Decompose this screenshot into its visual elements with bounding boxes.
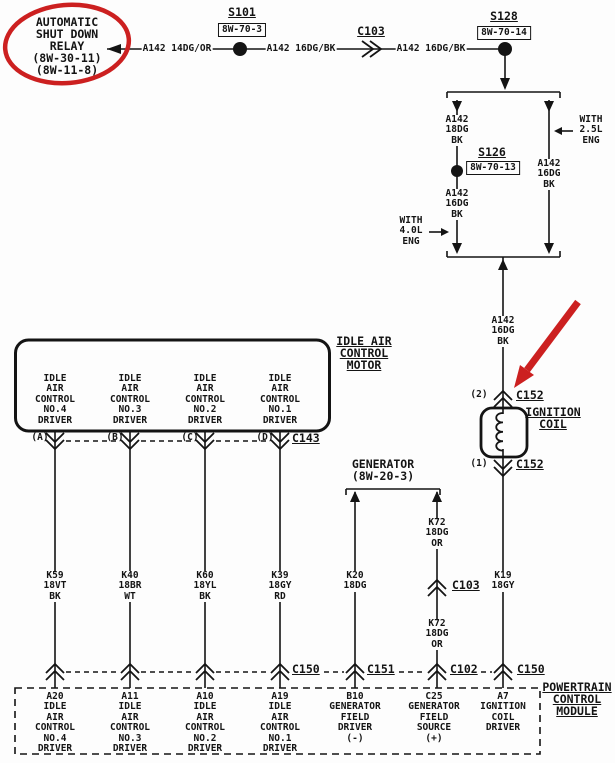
- split-bottom-bracket: [447, 251, 560, 257]
- wire-label-k72-lower: K72 18DG OR: [425, 619, 450, 650]
- diagram-linework: [0, 0, 615, 763]
- wire-label-a142-16dg-bk-1: A142 16DG/BK: [266, 44, 337, 54]
- wire-label-k72-upper: K72 18DG OR: [425, 518, 450, 549]
- left-branch-top-arrowhead: [452, 101, 462, 112]
- connector-c150-left-label: C150: [292, 663, 320, 675]
- coil-pin-1-label: (1): [470, 459, 487, 469]
- ignition-coil-winding-icon: [496, 413, 503, 451]
- iac-pin-d-label: (D): [256, 433, 273, 443]
- connector-c103-mid-label: C103: [452, 579, 480, 591]
- splice-s126-label: S126: [478, 146, 506, 158]
- generator-left-up-arrowhead: [350, 491, 360, 502]
- note-arrow-25l-head: [554, 127, 562, 135]
- right-branch-bottom-arrowhead: [544, 243, 554, 254]
- wire-label-k40: K40 18BR WT: [118, 571, 143, 602]
- connector-c102-label: C102: [450, 663, 478, 675]
- iac-driver-1-label: IDLE AIR CONTROL NO.1 DRIVER: [260, 374, 300, 426]
- iac-driver-2-label: IDLE AIR CONTROL NO.2 DRIVER: [185, 374, 225, 426]
- ignition-coil-label: IGNITION COIL: [525, 406, 580, 430]
- generator-bracket: [346, 489, 440, 495]
- pcm-pin-a10-label: A10 IDLE AIR CONTROL NO.2 DRIVER: [185, 692, 225, 754]
- ignition-coil-box: [481, 408, 527, 457]
- splice-s128-dot: [498, 42, 512, 56]
- split-top-bracket: [447, 92, 560, 98]
- note-arrow-40l-head: [441, 228, 449, 236]
- wire-label-k19-18gy: K19 18GY: [491, 571, 516, 592]
- wire-label-k59: K59 18VT BK: [43, 571, 68, 602]
- relay-callout-label: AUTOMATIC SHUT DOWN RELAY (8W-30-11) (8W…: [32, 16, 101, 76]
- connector-c143-label: C143: [292, 432, 320, 444]
- iac-pin-a-label: (A): [31, 433, 48, 443]
- note-with-25l-eng: WITH 2.5L ENG: [580, 115, 603, 146]
- splice-s126-ref-box: 8W-70-13: [466, 161, 520, 175]
- pcm-pin-a7-label: A7 IGNITION COIL DRIVER: [480, 692, 526, 734]
- red-pointer-arrow-shaft: [527, 302, 578, 370]
- connector-c152-top-label: C152: [516, 389, 544, 401]
- wire-label-a142-14dg-or: A142 14DG/OR: [142, 44, 213, 54]
- iac-pin-b-label: (B): [106, 433, 123, 443]
- wire-label-a142-18dg-bk: A142 18DG BK: [445, 115, 470, 146]
- iac-driver-4-label: IDLE AIR CONTROL NO.4 DRIVER: [35, 374, 75, 426]
- splice-dots: [233, 42, 512, 177]
- connector-c103-top-label: C103: [357, 25, 385, 37]
- iac-motor-label: IDLE AIR CONTROL MOTOR: [336, 335, 391, 371]
- pcm-pin-a11-label: A11 IDLE AIR CONTROL NO.3 DRIVER: [110, 692, 150, 754]
- splice-s101-dot: [233, 42, 247, 56]
- wire-label-a142-16dg-bk-2: A142 16DG/BK: [396, 44, 467, 54]
- note-with-40l-eng: WITH 4.0L ENG: [400, 216, 423, 247]
- wire-label-k20: K20 18DG: [343, 571, 368, 592]
- wire-label-k39: K39 18GY RD: [268, 571, 293, 602]
- connector-c151-label: C151: [367, 663, 395, 675]
- pcm-pin-b10-label: B10 GENERATOR FIELD DRIVER (-): [329, 692, 380, 744]
- pcm-pin-a19-label: A19 IDLE AIR CONTROL NO.1 DRIVER: [260, 692, 300, 754]
- pcm-pin-a20-label: A20 IDLE AIR CONTROL NO.4 DRIVER: [35, 692, 75, 754]
- merged-up-arrowhead: [498, 259, 508, 270]
- s128-down-arrowhead: [500, 78, 510, 90]
- splice-s128-label: S128: [490, 10, 518, 22]
- wire-label-a142-16dg-bk-merged: A142 16DG BK: [491, 316, 516, 347]
- splice-s101-ref-box: 8W-70-3: [218, 23, 266, 37]
- right-branch-top-arrowhead: [544, 101, 554, 112]
- generator-label: GENERATOR (8W-20-3): [352, 458, 414, 482]
- splice-s101-label: S101: [228, 6, 256, 18]
- relay-arrowhead: [107, 44, 121, 54]
- coil-pin-2-label: (2): [470, 390, 487, 400]
- pcm-label: POWERTRAIN CONTROL MODULE: [542, 681, 611, 717]
- left-branch-bottom-arrowhead: [452, 243, 462, 254]
- wire-label-k60: K60 18YL BK: [193, 571, 218, 602]
- splice-s128-ref-box: 8W-70-14: [477, 26, 531, 40]
- iac-wire-lines: [55, 431, 280, 688]
- wire-label-a142-16dg-bk-left: A142 16DG BK: [445, 189, 470, 220]
- flow-arrowheads: [107, 44, 562, 502]
- connector-c150-right-label: C150: [517, 663, 545, 675]
- wiring-diagram: AUTOMATIC SHUT DOWN RELAY (8W-30-11) (8W…: [0, 0, 615, 763]
- iac-pin-c-label: (C): [181, 433, 198, 443]
- pcm-pin-c25-label: C25 GENERATOR FIELD SOURCE (+): [408, 692, 459, 744]
- iac-driver-3-label: IDLE AIR CONTROL NO.3 DRIVER: [110, 374, 150, 426]
- wire-label-a142-16dg-bk-right: A142 16DG BK: [537, 159, 562, 190]
- splice-s126-dot: [451, 165, 463, 177]
- connector-c152-bottom-label: C152: [516, 458, 544, 470]
